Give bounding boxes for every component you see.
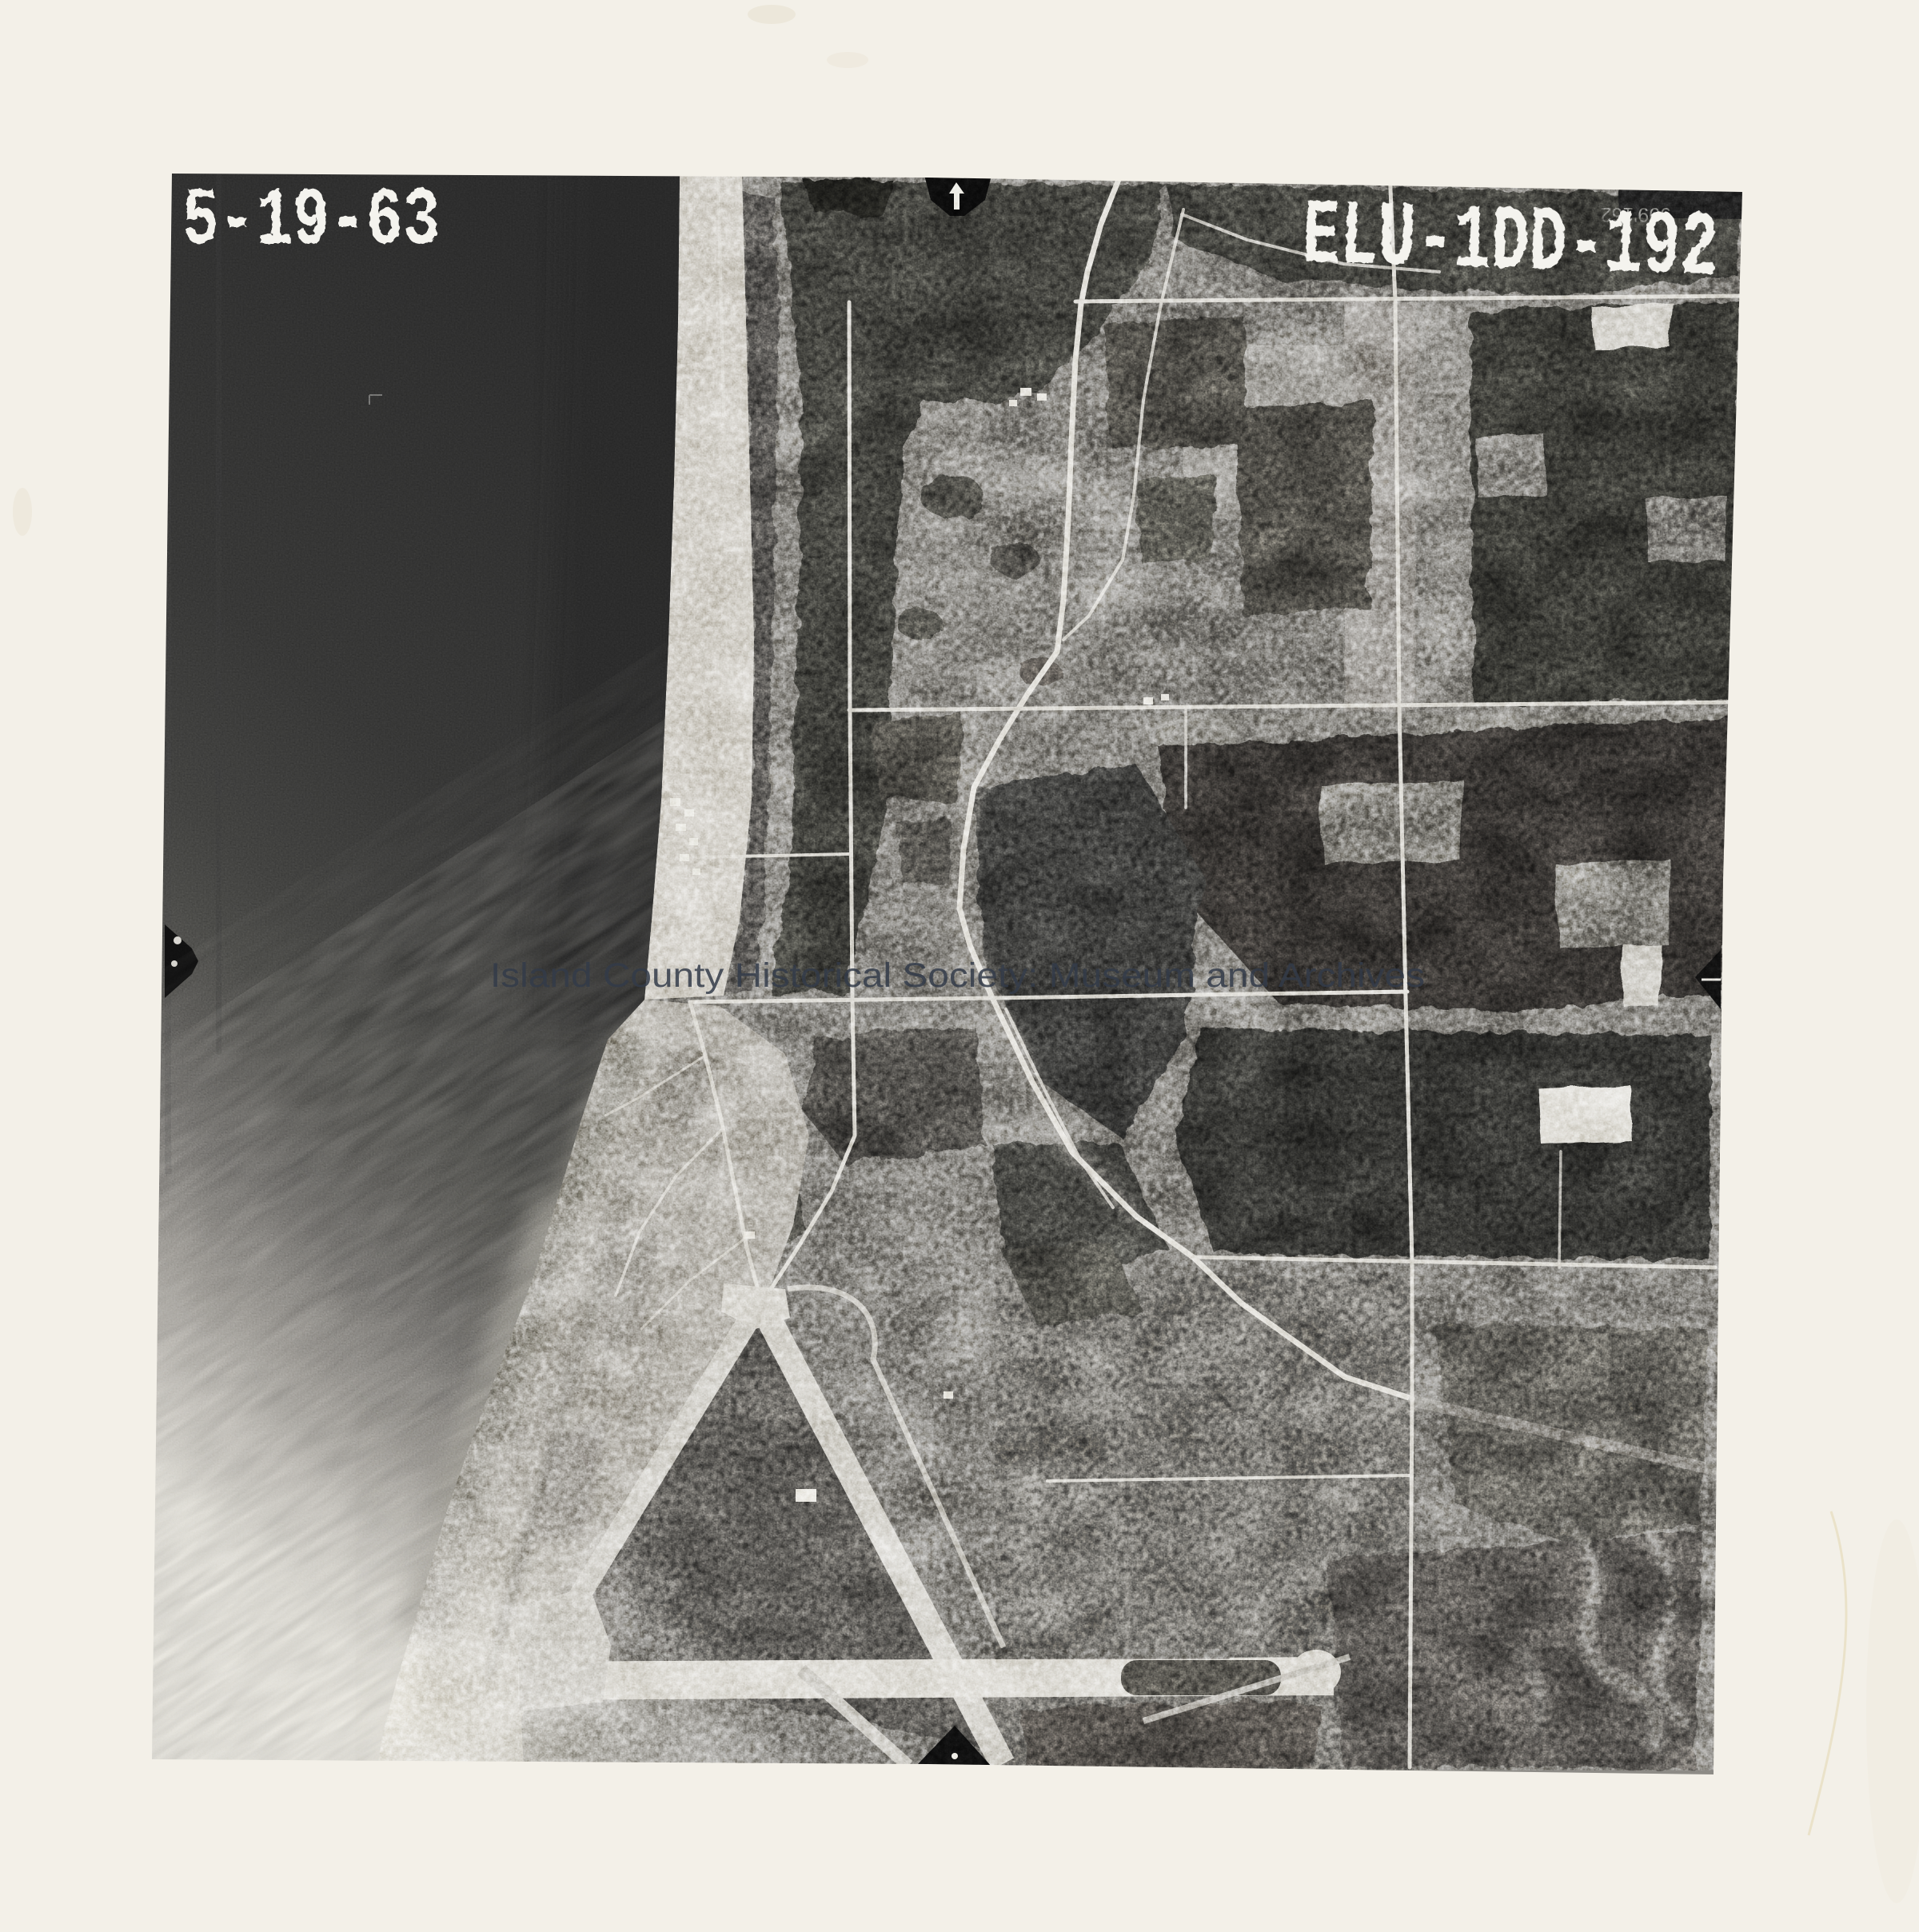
svg-text:Island County Historical Socie: Island County Historical Society: Museum… (490, 956, 1425, 995)
svg-text:ELU-1DD-192: ELU-1DD-192 (1301, 186, 1720, 301)
svg-text:5-19-63: 5-19-63 (182, 175, 440, 268)
